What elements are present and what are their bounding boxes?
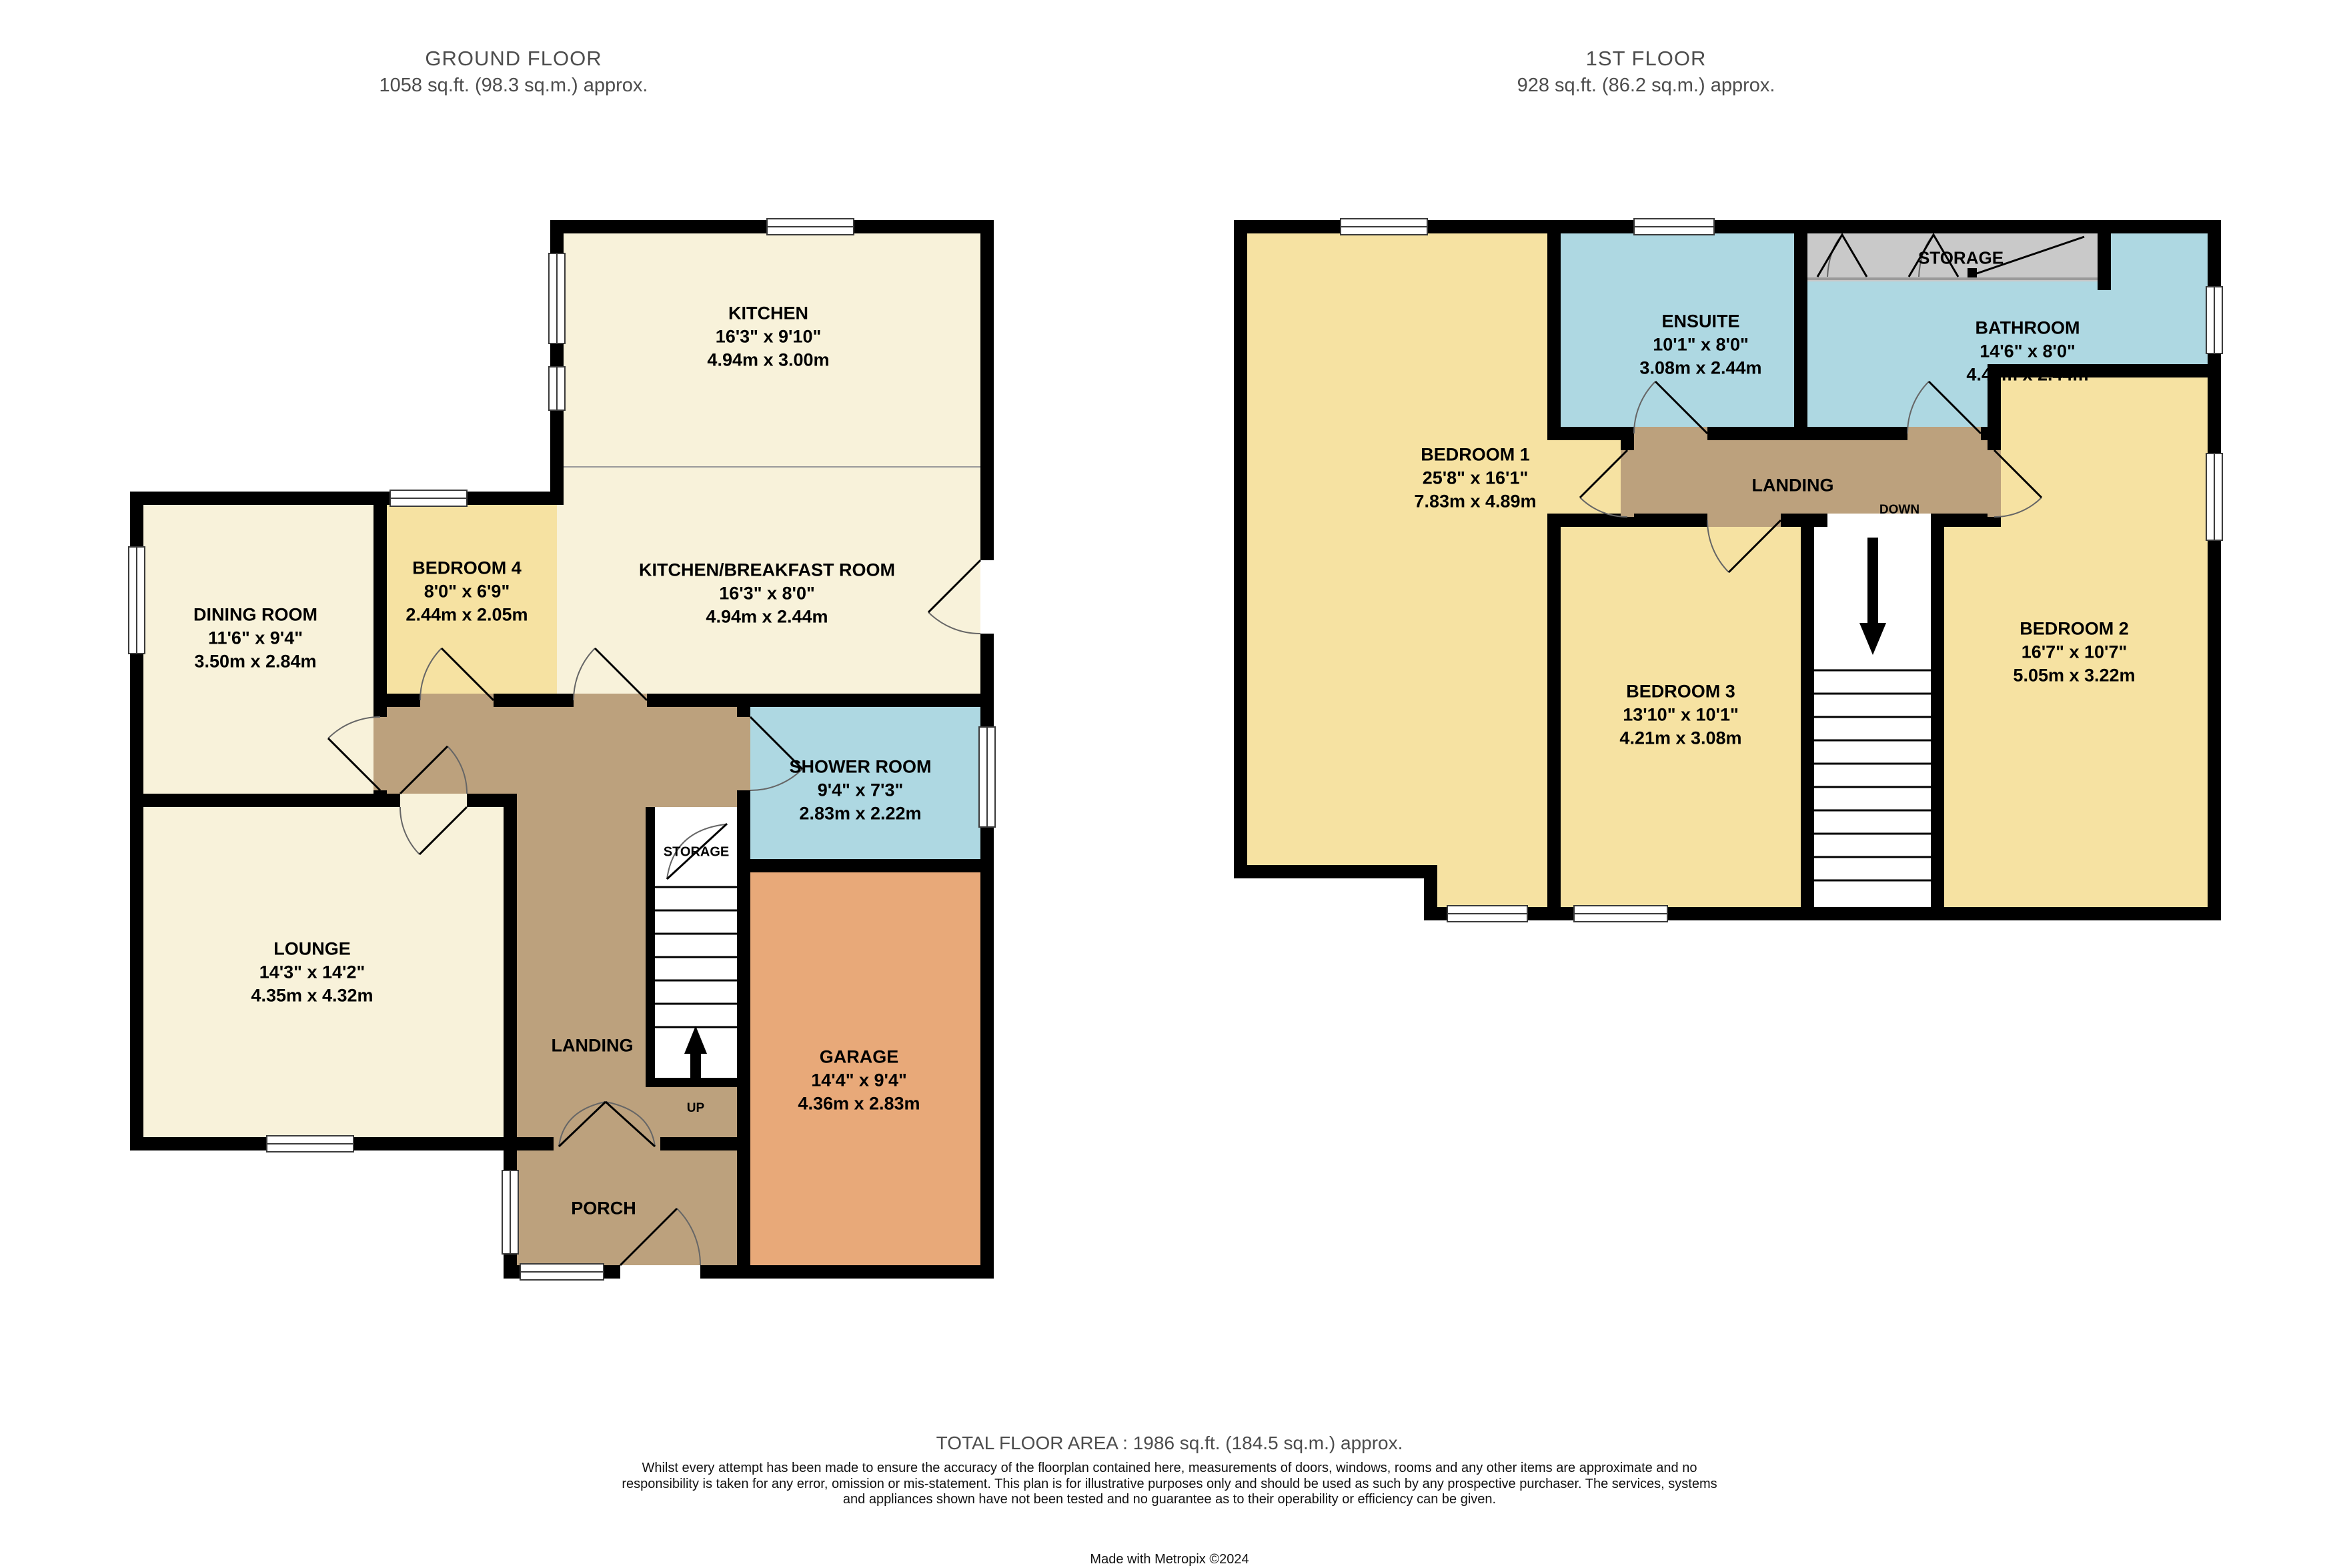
shower-metric: 2.83m x 2.22m [790, 802, 932, 826]
shower-imperial: 9'4" x 7'3" [790, 779, 932, 802]
lounge-name: LOUNGE [251, 938, 373, 961]
bedroom4-name: BEDROOM 4 [406, 557, 528, 580]
room-label-bedroom3: BEDROOM 3 13'10" x 10'1" 4.21m x 3.08m [1619, 680, 1741, 750]
total-floor-area: TOTAL FLOOR AREA : 1986 sq.ft. (184.5 sq… [936, 1433, 1403, 1454]
bedroom3-imperial: 13'10" x 10'1" [1619, 704, 1741, 727]
room-label-bedroom2: BEDROOM 2 16'7" x 10'7" 5.05m x 3.22m [2013, 618, 2135, 688]
ensuite-imperial: 10'1" x 8'0" [1639, 333, 1761, 357]
credit-text: Made with Metropix ©2024 [1090, 1552, 1249, 1567]
dining-metric: 3.50m x 2.84m [193, 650, 317, 674]
room-label-bedroom1: BEDROOM 1 25'8" x 16'1" 7.83m x 4.89m [1414, 444, 1536, 514]
floorplan-drawing [0, 0, 2339, 1568]
bedroom4-imperial: 8'0" x 6'9" [406, 580, 528, 604]
stairs-down-label: DOWN [1879, 503, 1919, 518]
landing-first-name: LANDING [1752, 474, 1834, 498]
ground-floor-title: GROUND FLOOR 1058 sq.ft. (98.3 sq.m.) ap… [379, 47, 648, 97]
room-label-storage-first: STORAGE [1918, 247, 2004, 270]
floorplan-page: GROUND FLOOR 1058 sq.ft. (98.3 sq.m.) ap… [0, 0, 2339, 1568]
bathroom-imperial: 14'6" x 8'0" [1966, 340, 2088, 363]
room-label-bedroom4: BEDROOM 4 8'0" x 6'9" 2.44m x 2.05m [406, 557, 528, 627]
dining-name: DINING ROOM [193, 604, 317, 627]
storage-first-name: STORAGE [1918, 247, 2004, 270]
disclaimer-text: Whilst every attempt has been made to en… [616, 1461, 1723, 1508]
landing-ground-name: LANDING [552, 1034, 634, 1058]
stairs-up-label: UP [687, 1101, 704, 1116]
room-label-bathroom: BATHROOM 14'6" x 8'0" 4.43m x 2.44m [1966, 317, 2088, 387]
shower-name: SHOWER ROOM [790, 756, 932, 779]
room-label-shower: SHOWER ROOM 9'4" x 7'3" 2.83m x 2.22m [790, 756, 932, 826]
bedroom1-imperial: 25'8" x 16'1" [1414, 467, 1536, 490]
bedroom3-name: BEDROOM 3 [1619, 680, 1741, 704]
ground-floor-title-text: GROUND FLOOR [379, 47, 648, 71]
room-label-kitchen: KITCHEN 16'3" x 9'10" 4.94m x 3.00m [707, 302, 829, 372]
room-label-ensuite: ENSUITE 10'1" x 8'0" 3.08m x 2.44m [1639, 310, 1761, 380]
ensuite-name: ENSUITE [1639, 310, 1761, 333]
ensuite-metric: 3.08m x 2.44m [1639, 357, 1761, 380]
room-label-porch: PORCH [571, 1197, 636, 1221]
kitchen-breakfast-name: KITCHEN/BREAKFAST ROOM [639, 559, 895, 582]
bedroom2-name: BEDROOM 2 [2013, 618, 2135, 641]
room-label-garage: GARAGE 14'4" x 9'4" 4.36m x 2.83m [798, 1046, 920, 1116]
garage-name: GARAGE [798, 1046, 920, 1069]
first-floor-area-text: 928 sq.ft. (86.2 sq.m.) approx. [1517, 75, 1775, 97]
room-label-kitchen-breakfast: KITCHEN/BREAKFAST ROOM 16'3" x 8'0" 4.94… [639, 559, 895, 629]
first-floor-title: 1ST FLOOR 928 sq.ft. (86.2 sq.m.) approx… [1517, 47, 1775, 97]
room-label-storage-ground: STORAGE [664, 845, 730, 860]
ground-floor-area-text: 1058 sq.ft. (98.3 sq.m.) approx. [379, 75, 648, 97]
first-floor-title-text: 1ST FLOOR [1517, 47, 1775, 71]
dining-imperial: 11'6" x 9'4" [193, 627, 317, 650]
garage-imperial: 14'4" x 9'4" [798, 1069, 920, 1092]
room-label-landing-first: LANDING [1752, 474, 1834, 498]
bedroom1-metric: 7.83m x 4.89m [1414, 490, 1536, 514]
bedroom2-metric: 5.05m x 3.22m [2013, 664, 2135, 688]
lounge-metric: 4.35m x 4.32m [251, 984, 373, 1008]
room-label-landing-ground: LANDING [552, 1034, 634, 1058]
kitchen-name: KITCHEN [707, 302, 829, 325]
room-label-dining: DINING ROOM 11'6" x 9'4" 3.50m x 2.84m [193, 604, 317, 674]
bathroom-metric: 4.43m x 2.44m [1966, 363, 2088, 387]
lounge-imperial: 14'3" x 14'2" [251, 961, 373, 984]
kitchen-metric: 4.94m x 3.00m [707, 349, 829, 372]
room-label-lounge: LOUNGE 14'3" x 14'2" 4.35m x 4.32m [251, 938, 373, 1008]
bedroom4-metric: 2.44m x 2.05m [406, 604, 528, 627]
kitchen-breakfast-metric: 4.94m x 2.44m [639, 606, 895, 629]
first-floor-storage-divider [1807, 277, 2098, 280]
porch-name: PORCH [571, 1197, 636, 1221]
kitchen-imperial: 16'3" x 9'10" [707, 325, 829, 349]
bedroom2-imperial: 16'7" x 10'7" [2013, 641, 2135, 664]
bedroom3-metric: 4.21m x 3.08m [1619, 727, 1741, 750]
bedroom1-name: BEDROOM 1 [1414, 444, 1536, 467]
garage-metric: 4.36m x 2.83m [798, 1092, 920, 1116]
kitchen-breakfast-imperial: 16'3" x 8'0" [639, 582, 895, 606]
bathroom-name: BATHROOM [1966, 317, 2088, 340]
